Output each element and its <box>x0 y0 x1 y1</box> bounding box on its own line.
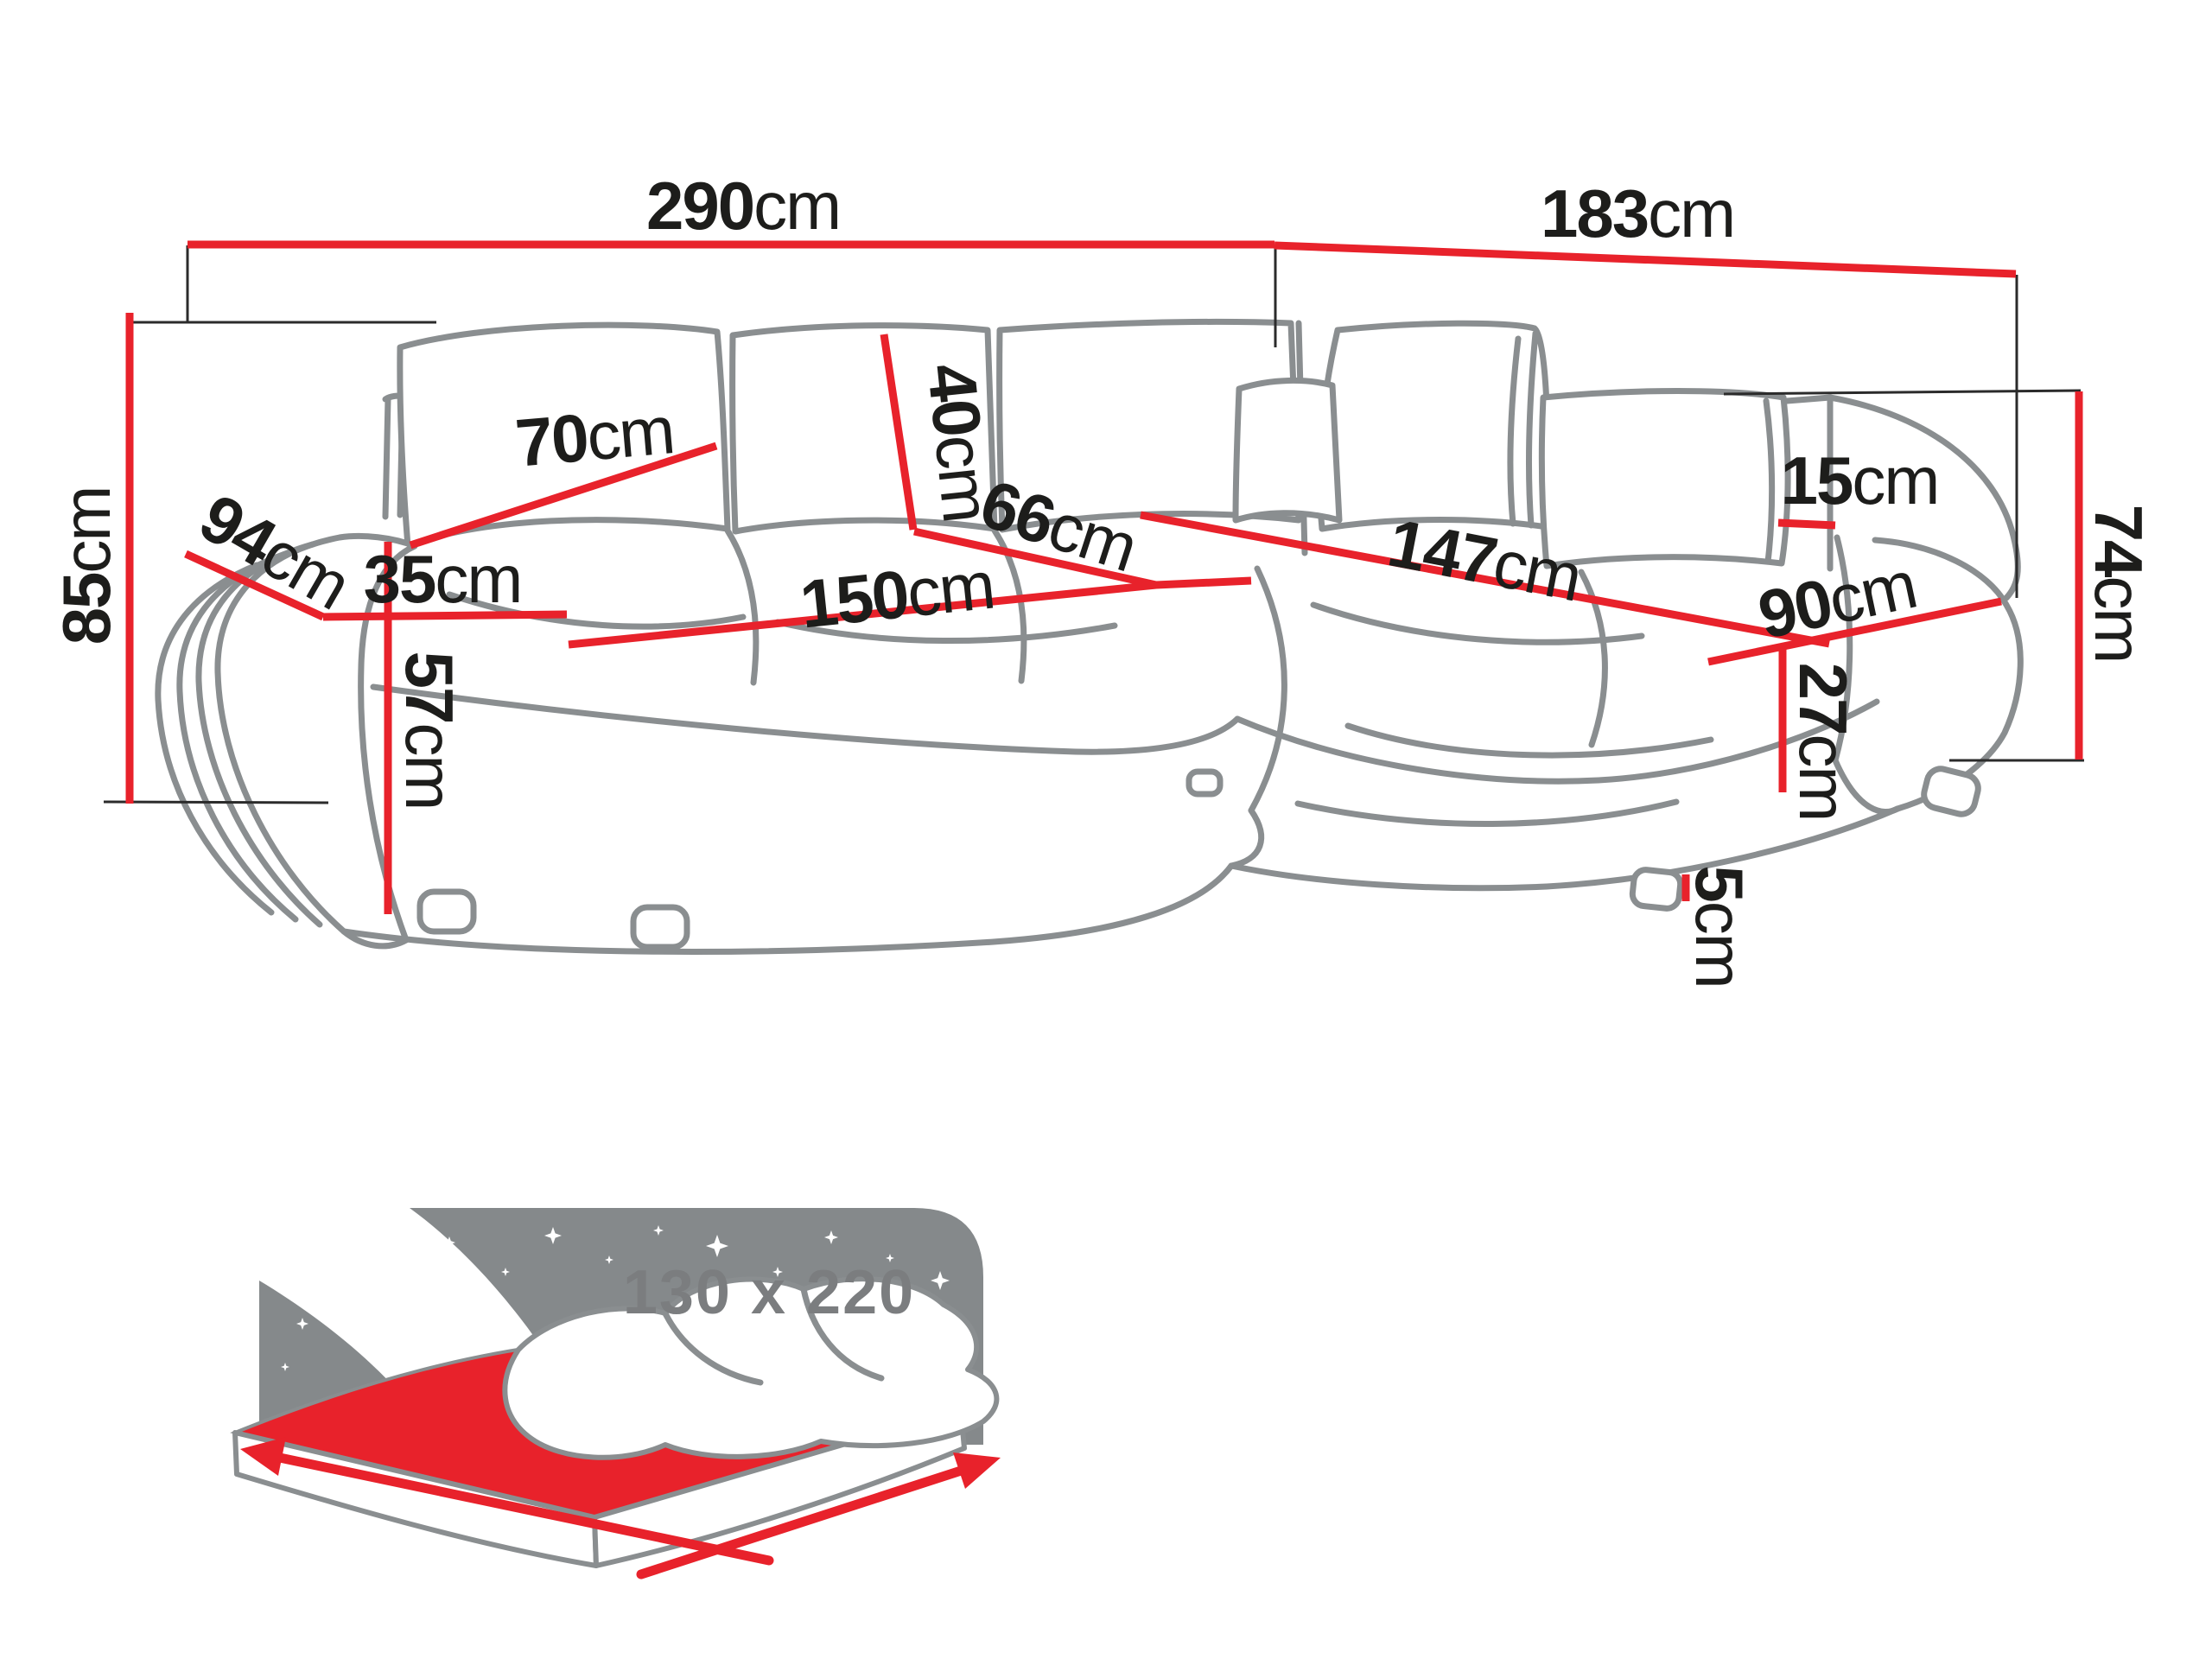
dimension-label-side-height: 74cm <box>2085 505 2152 663</box>
dimension-label-seat-width: 150cm <box>797 550 996 638</box>
dimension-unit: cm <box>1487 524 1586 615</box>
sofa-leg <box>1921 766 1980 817</box>
dimension-value: 74 <box>2081 505 2157 576</box>
dimension-unit: cm <box>391 722 467 809</box>
dimension-unit: cm <box>1681 901 1758 988</box>
dimension-value: 15 <box>1781 442 1853 518</box>
dimension-value: 57 <box>391 652 467 723</box>
dimension-label-back-height: 85cm <box>53 487 120 645</box>
dimension-label-total-depth: 183cm <box>1541 180 1734 247</box>
dimension-unit: cm <box>753 168 840 244</box>
sofa-line-art <box>158 321 2020 951</box>
dimension-label-leg-height: 5cm <box>1686 865 1753 987</box>
dimension-unit: cm <box>1852 442 1938 518</box>
dimension-label-back-cushion-width: 70cm <box>513 396 677 477</box>
dimension-value: 27 <box>1785 663 1861 734</box>
dimension-unit: cm <box>1785 734 1861 820</box>
diagram-canvas <box>0 0 2212 1659</box>
dimension-unit: cm <box>1648 175 1734 251</box>
dimension-value: 85 <box>48 574 124 645</box>
star-icon <box>402 1345 410 1354</box>
sofa-leg <box>633 907 687 947</box>
star-icon <box>480 1319 488 1328</box>
sofa-leg <box>1189 772 1220 794</box>
dimension-label-headrest-ledge: 15cm <box>1781 447 1939 514</box>
sofa-leg <box>1631 868 1681 909</box>
dimension-label-arm-width: 35cm <box>364 545 522 613</box>
dimension-unit: cm <box>903 547 997 632</box>
sleeping-size-label: 130 x 220 <box>623 1257 915 1328</box>
dimension-value: 5 <box>1681 865 1758 900</box>
corner-cushion <box>1236 380 1339 520</box>
sofa-dimension-diagram: 290cm183cm85cm94cm35cm57cm70cm40cm66cm15… <box>0 0 2212 1659</box>
dimension-unit: cm <box>2081 575 2157 662</box>
dimension-label-total-width: 290cm <box>646 172 840 239</box>
dimension-value: 183 <box>1541 175 1648 251</box>
dim-line-15 <box>1778 523 1835 525</box>
dimension-value: 70 <box>512 399 590 481</box>
dimension-value: 290 <box>646 168 753 244</box>
dimension-unit: cm <box>435 541 521 617</box>
dimension-unit: cm <box>584 391 677 474</box>
dimension-value: 35 <box>364 541 435 617</box>
dimension-label-arm-height: 57cm <box>396 652 463 810</box>
dimension-value: 40 <box>913 360 996 440</box>
dimension-value: 150 <box>797 556 912 642</box>
dimension-unit: cm <box>48 487 124 574</box>
sofa-leg <box>420 892 474 931</box>
dimension-label-seat-front-height: 27cm <box>1789 663 1857 821</box>
